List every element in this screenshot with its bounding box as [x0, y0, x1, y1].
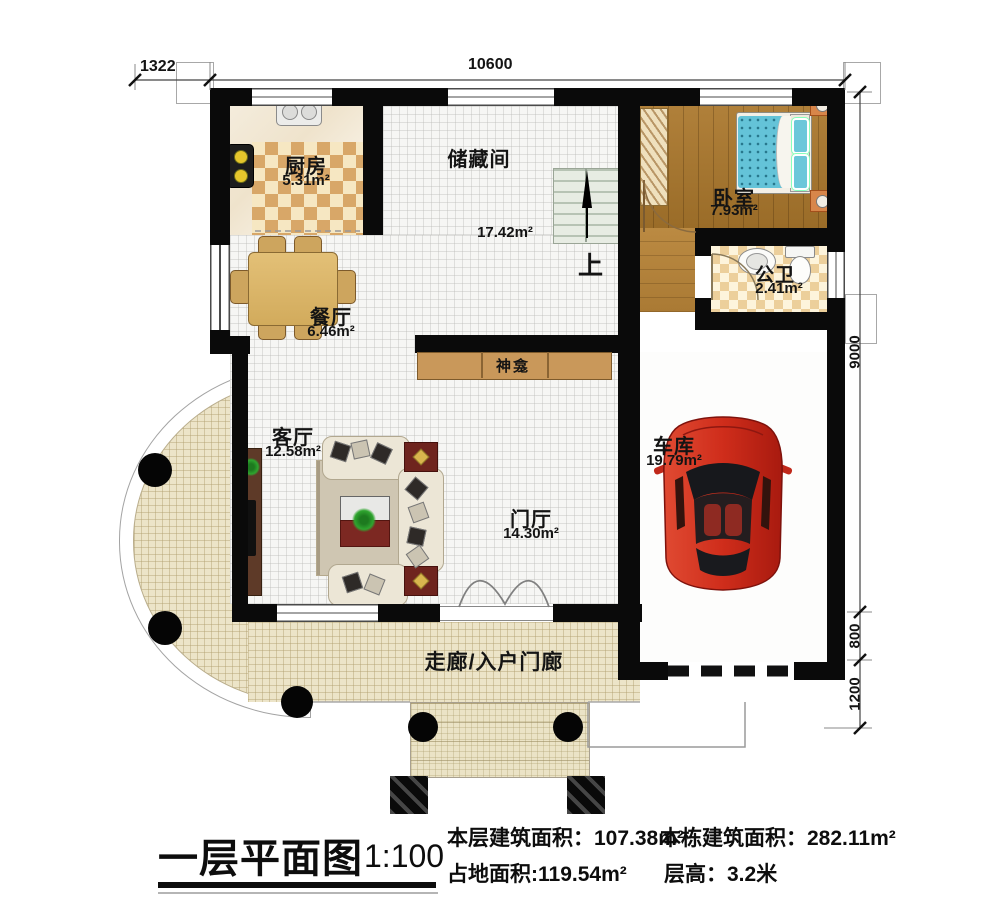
- plan-title: 一层平面图: [158, 826, 363, 884]
- stat-label: 本层建筑面积：: [447, 827, 594, 850]
- stove-burner: [234, 150, 248, 164]
- bed-pillow: [792, 118, 809, 154]
- dim-tick: [854, 606, 866, 618]
- porch-column: [553, 712, 583, 742]
- label-corridor: 走廊/入户门廊: [425, 646, 564, 676]
- sofa-pillow: [406, 526, 426, 546]
- label-stairs-up: 上: [578, 246, 604, 282]
- car-cabin: [694, 493, 752, 544]
- dim-tick: [854, 654, 866, 666]
- title-underline: [158, 882, 436, 888]
- wall-shrine: [415, 335, 640, 353]
- porch-pier: [567, 776, 605, 814]
- bed-pillow: [792, 154, 809, 190]
- stat-value: 3.2米: [727, 863, 777, 886]
- area-bathroom: 2.41m²: [755, 280, 803, 297]
- kitchen-stove: [226, 144, 254, 188]
- porch-column: [281, 686, 313, 718]
- gold-emblem: [413, 573, 430, 590]
- label-shrine: 神龛: [496, 355, 530, 376]
- floor-plan-canvas: 1322 10600 9000 800 1200 厨房 5.31m² 储藏间 1…: [0, 0, 1000, 914]
- wardrobe: [640, 108, 668, 206]
- sofa-pillow: [350, 439, 370, 459]
- dim-top-left-offset: 1322: [140, 58, 176, 76]
- bed-sheet: [776, 116, 791, 188]
- staircase: [553, 168, 621, 244]
- dim-top-width: 10600: [468, 56, 513, 74]
- wall-garage-bottom-right: [794, 662, 845, 680]
- wall-bathroom-south: [695, 312, 845, 330]
- wall-bottom-a: [232, 604, 277, 622]
- stat-label: 层高：: [664, 863, 727, 886]
- window-bathroom: [827, 252, 845, 298]
- shelf-divider: [481, 352, 483, 378]
- wall-garage-bottom-left: [618, 662, 668, 680]
- niche-top-right: [843, 62, 881, 104]
- coffee-table-plant: [352, 508, 376, 532]
- window-bedroom: [700, 88, 792, 106]
- dim-tick: [854, 722, 866, 734]
- wall-living-left: [232, 336, 248, 622]
- porch-column: [138, 453, 172, 487]
- driveway-outline: [588, 702, 745, 747]
- stat-label: 本栋建筑面积：: [660, 827, 807, 850]
- porch-column: [408, 712, 438, 742]
- wall-right: [827, 88, 845, 680]
- window-kitchen: [252, 88, 332, 106]
- wall-garage-left: [618, 88, 640, 680]
- area-bedroom: 7.93m²: [710, 202, 758, 219]
- area-garage: 19.79m²: [646, 452, 702, 469]
- dim-right-offset-large: 1200: [847, 677, 864, 710]
- window-storage: [448, 88, 554, 106]
- stat-value: 119.54m²: [538, 863, 627, 886]
- label-storage: 储藏间: [448, 143, 511, 172]
- area-entry: 14.30m²: [503, 525, 559, 542]
- car-seat: [725, 504, 742, 536]
- dim-right-offset-small: 800: [847, 623, 864, 648]
- bedroom-hall-floor: [640, 228, 695, 312]
- wall-bedroom-south: [695, 228, 845, 246]
- stat-building-area: 本栋建筑面积：282.11m²: [660, 822, 896, 852]
- side-table: [404, 442, 438, 472]
- wall-kitchen-right: [363, 88, 383, 235]
- stat-floor-area: 本层建筑面积：107.38m²: [447, 822, 684, 852]
- stat-label: 占地面积:: [447, 863, 538, 886]
- sink-basin: [301, 104, 317, 120]
- gold-emblem: [413, 449, 430, 466]
- stat-land-area: 占地面积:119.54m²: [447, 858, 627, 888]
- side-table: [404, 566, 438, 596]
- stat-value: 282.11m²: [807, 827, 896, 850]
- area-living: 12.58m²: [265, 443, 321, 460]
- area-dining: 6.46m²: [307, 323, 355, 340]
- wall-left-upper: [210, 88, 230, 245]
- staircase-stringer: [585, 168, 587, 242]
- shelf-divider: [547, 352, 549, 378]
- stove-burner: [234, 169, 248, 183]
- dim-right-height: 9000: [847, 335, 864, 368]
- window-dining: [210, 245, 230, 330]
- porch-column: [148, 611, 182, 645]
- stat-floor-height: 层高：3.2米: [664, 858, 777, 888]
- plan-scale: 1:100: [364, 838, 444, 875]
- wall-bathroom-left-a: [695, 246, 711, 256]
- title-underline-2: [158, 892, 438, 894]
- niche-top-left: [176, 62, 214, 104]
- car-seat: [704, 504, 721, 536]
- area-kitchen: 5.31m²: [282, 172, 330, 189]
- window-living-south: [277, 604, 378, 622]
- porch-pier: [390, 776, 428, 814]
- area-storage: 17.42m²: [477, 224, 533, 241]
- sink-basin: [282, 104, 298, 120]
- wall-bottom-b: [378, 604, 440, 622]
- entry-door-threshold: [440, 606, 553, 621]
